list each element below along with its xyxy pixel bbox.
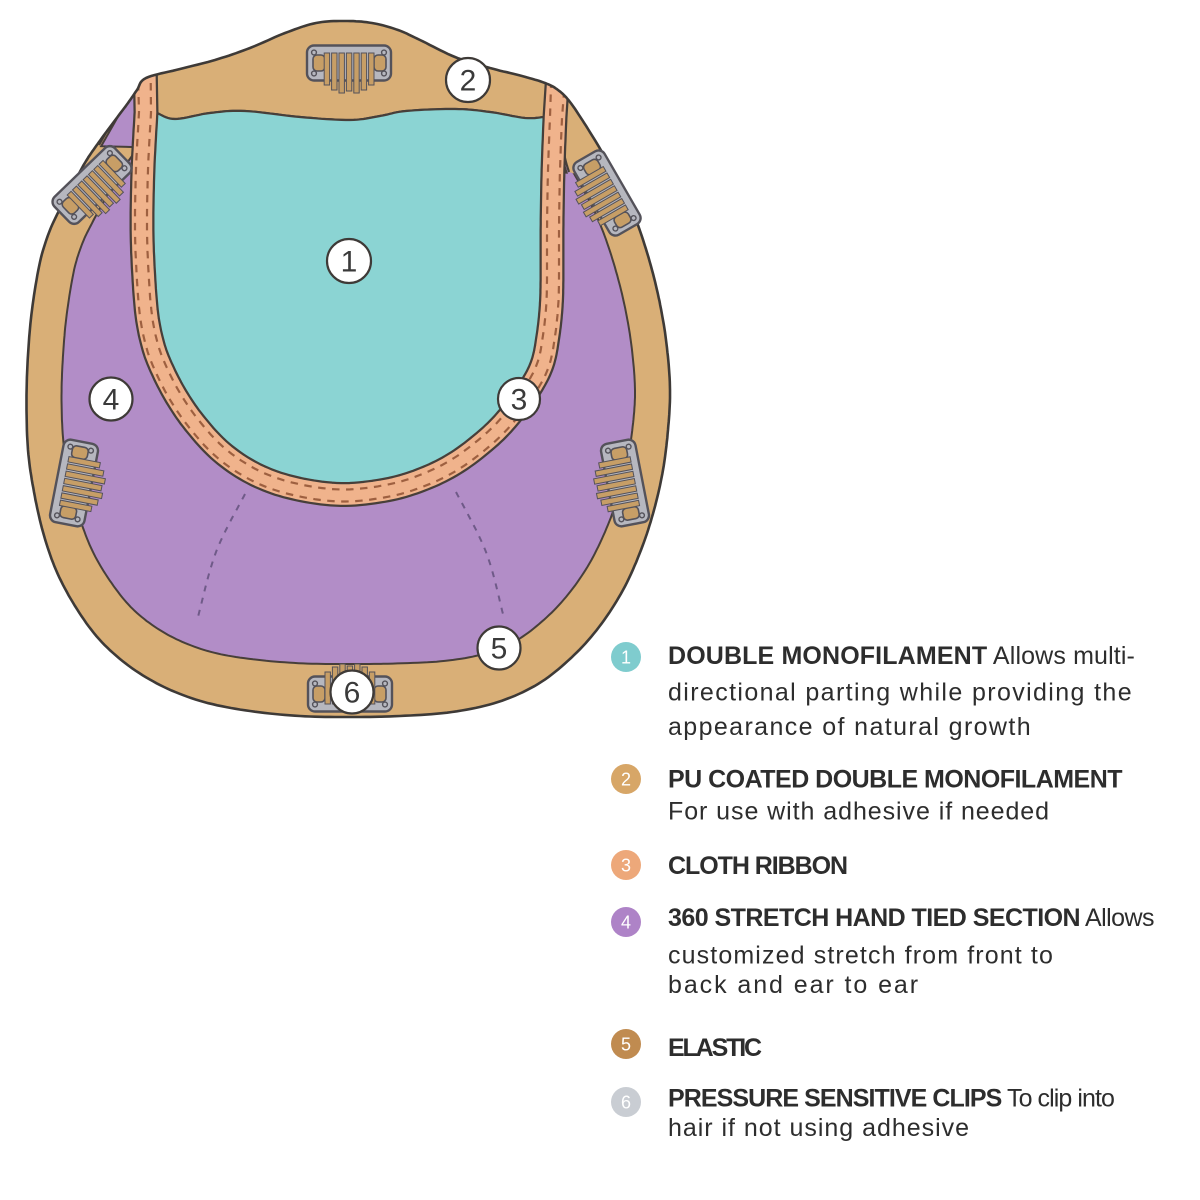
svg-text:appearance of natural growth: appearance of natural growth	[668, 713, 1032, 741]
svg-text:3: 3	[621, 855, 631, 875]
svg-text:6: 6	[621, 1092, 631, 1112]
svg-text:CLOTH RIBBON: CLOTH RIBBON	[668, 852, 847, 880]
svg-text:PRESSURE SENSITIVE CLIPS To cl: PRESSURE SENSITIVE CLIPS To clip into	[668, 1085, 1114, 1113]
svg-text:customized stretch from front: customized stretch from front to	[668, 942, 1054, 970]
svg-text:PU COATED DOUBLE MONOFILAMENT: PU COATED DOUBLE MONOFILAMENT	[668, 766, 1122, 794]
svg-text:1: 1	[341, 246, 358, 279]
svg-text:1: 1	[621, 647, 631, 667]
svg-text:4: 4	[621, 912, 631, 932]
svg-text:hair if not using adhesive: hair if not using adhesive	[668, 1114, 970, 1142]
svg-text:3: 3	[511, 384, 528, 417]
svg-text:2: 2	[621, 769, 631, 789]
svg-text:2: 2	[460, 65, 477, 98]
svg-text:For use with adhesive if neede: For use with adhesive if needed	[668, 798, 1050, 826]
svg-text:6: 6	[344, 677, 361, 710]
svg-text:directional parting while prov: directional parting while providing the	[668, 679, 1133, 707]
svg-text:ELASTIC: ELASTIC	[668, 1034, 762, 1062]
svg-text:5: 5	[491, 633, 508, 666]
svg-text:back and ear to ear: back and ear to ear	[668, 971, 920, 999]
svg-text:360 STRETCH HAND TIED SECTION: 360 STRETCH HAND TIED SECTION Allows	[668, 904, 1154, 932]
svg-text:5: 5	[621, 1034, 631, 1054]
svg-text:DOUBLE MONOFILAMENT Allows mul: DOUBLE MONOFILAMENT Allows multi-	[668, 642, 1135, 670]
svg-text:4: 4	[103, 384, 120, 417]
